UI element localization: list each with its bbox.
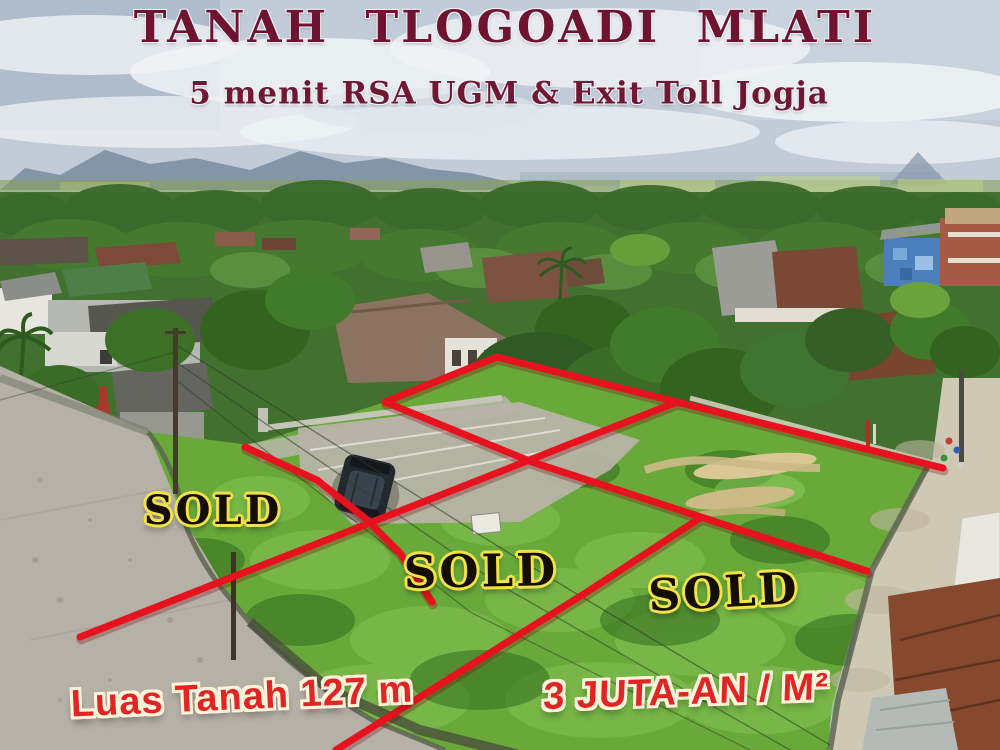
aerial-photo xyxy=(0,0,1000,750)
price-label: 3 JUTA-AN / M² xyxy=(543,668,830,716)
land-sale-ad: TANAH TLOGOADI MLATI 5 menit RSA UGM & E… xyxy=(0,0,1000,750)
white-sign xyxy=(471,513,501,535)
sold-label-1: SOLD xyxy=(144,491,283,531)
blue-mural-house xyxy=(880,222,948,286)
ad-subtitle: 5 menit RSA UGM & Exit Toll Jogja xyxy=(189,79,829,110)
sold-label-2: SOLD xyxy=(403,547,558,595)
sold-label-3: SOLD xyxy=(647,567,800,619)
ad-title: TANAH TLOGOADI MLATI xyxy=(134,6,877,50)
brick-house xyxy=(940,208,1000,286)
